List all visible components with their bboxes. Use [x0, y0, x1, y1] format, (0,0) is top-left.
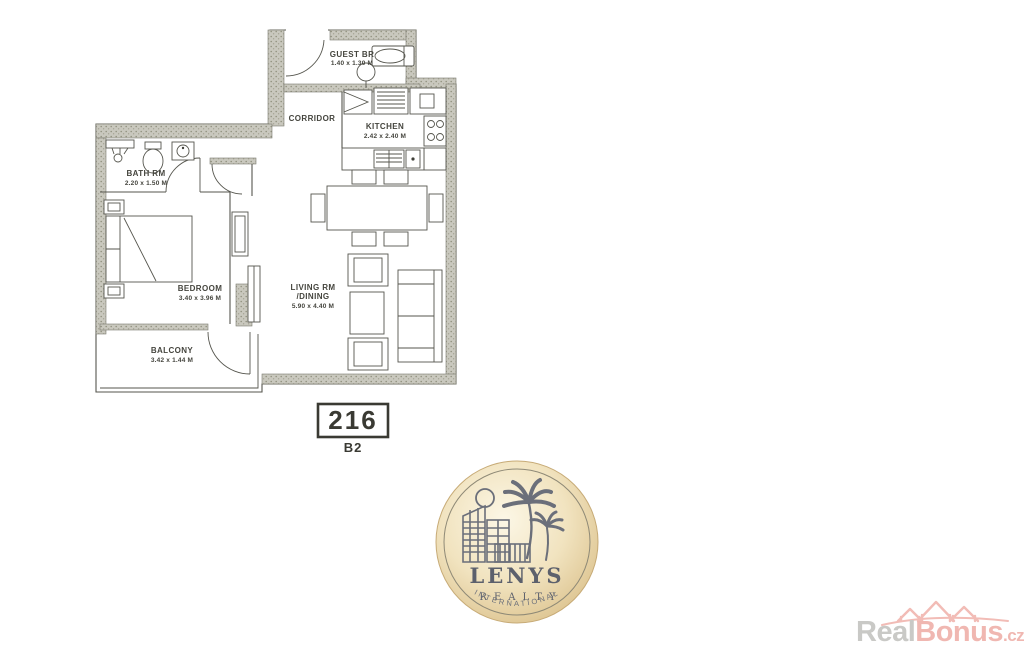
unit-variant: B2	[344, 440, 363, 455]
chair	[429, 194, 443, 222]
room-label-bedroom: BEDROOM 3.40 x 3.96 M	[178, 284, 223, 302]
watermark-real: Real	[856, 616, 915, 648]
svg-text:LIVING RM: LIVING RM	[291, 283, 336, 292]
svg-text:/DINING: /DINING	[296, 292, 329, 301]
lenys-realty-logo: LENYS REALTY INTERNATIONAL	[433, 458, 601, 626]
chair	[384, 232, 408, 246]
room-label-living: LIVING RM /DINING 5.90 x 4.40 M	[291, 283, 336, 310]
realbonus-watermark: RealBonus.cz	[852, 594, 1024, 652]
room-label-balcony: BALCONY 3.42 x 1.44 M	[151, 346, 194, 364]
chair	[311, 194, 325, 222]
unit-number-badge: 216 B2	[318, 404, 388, 455]
chair	[352, 232, 376, 246]
svg-text:BALCONY: BALCONY	[151, 346, 194, 355]
dining-table	[327, 186, 427, 230]
living-room-furniture	[348, 254, 442, 370]
svg-text:BEDROOM: BEDROOM	[178, 284, 223, 293]
room-label-bath: BATH RM 2.20 x 1.50 M	[125, 169, 167, 187]
page: GUEST BR 1.40 x 1.30 M CORRIDOR KITCHEN …	[0, 0, 1024, 654]
unit-number: 216	[328, 405, 377, 435]
wardrobe	[232, 212, 248, 256]
watermark-bonus: Bonus	[915, 616, 1003, 648]
shower	[106, 140, 134, 148]
counter	[424, 148, 446, 170]
svg-text:KITCHEN: KITCHEN	[366, 122, 404, 131]
logo-brand-text: LENYS	[469, 563, 564, 588]
watermark-text: RealBonus.cz	[856, 616, 1024, 649]
svg-text:2.20 x 1.50 M: 2.20 x 1.50 M	[125, 180, 167, 187]
svg-text:2.42 x 2.40 M: 2.42 x 2.40 M	[364, 133, 406, 140]
chair	[384, 170, 408, 184]
stove	[424, 116, 446, 146]
svg-text:BATH RM: BATH RM	[126, 169, 165, 178]
coffee-table	[350, 292, 384, 334]
room-label-guest-br: GUEST BR 1.40 x 1.30 M	[330, 50, 375, 67]
nightstand	[104, 284, 124, 298]
nightstand	[104, 200, 124, 214]
watermark-cz: .cz	[1003, 626, 1024, 645]
svg-text:3.40 x 3.96 M: 3.40 x 3.96 M	[179, 295, 221, 302]
toilet	[145, 142, 161, 149]
dining-set	[311, 170, 443, 246]
chair	[352, 170, 376, 184]
svg-text:5.90 x 4.40 M: 5.90 x 4.40 M	[292, 303, 334, 310]
room-label-corridor: CORRIDOR	[289, 114, 336, 123]
svg-text:GUEST BR: GUEST BR	[330, 50, 375, 59]
svg-text:3.42 x 1.44 M: 3.42 x 1.44 M	[151, 357, 193, 364]
counter	[410, 88, 446, 114]
room-label-kitchen: KITCHEN 2.42 x 2.40 M	[364, 122, 406, 140]
svg-text:1.40 x 1.30 M: 1.40 x 1.30 M	[331, 60, 373, 67]
